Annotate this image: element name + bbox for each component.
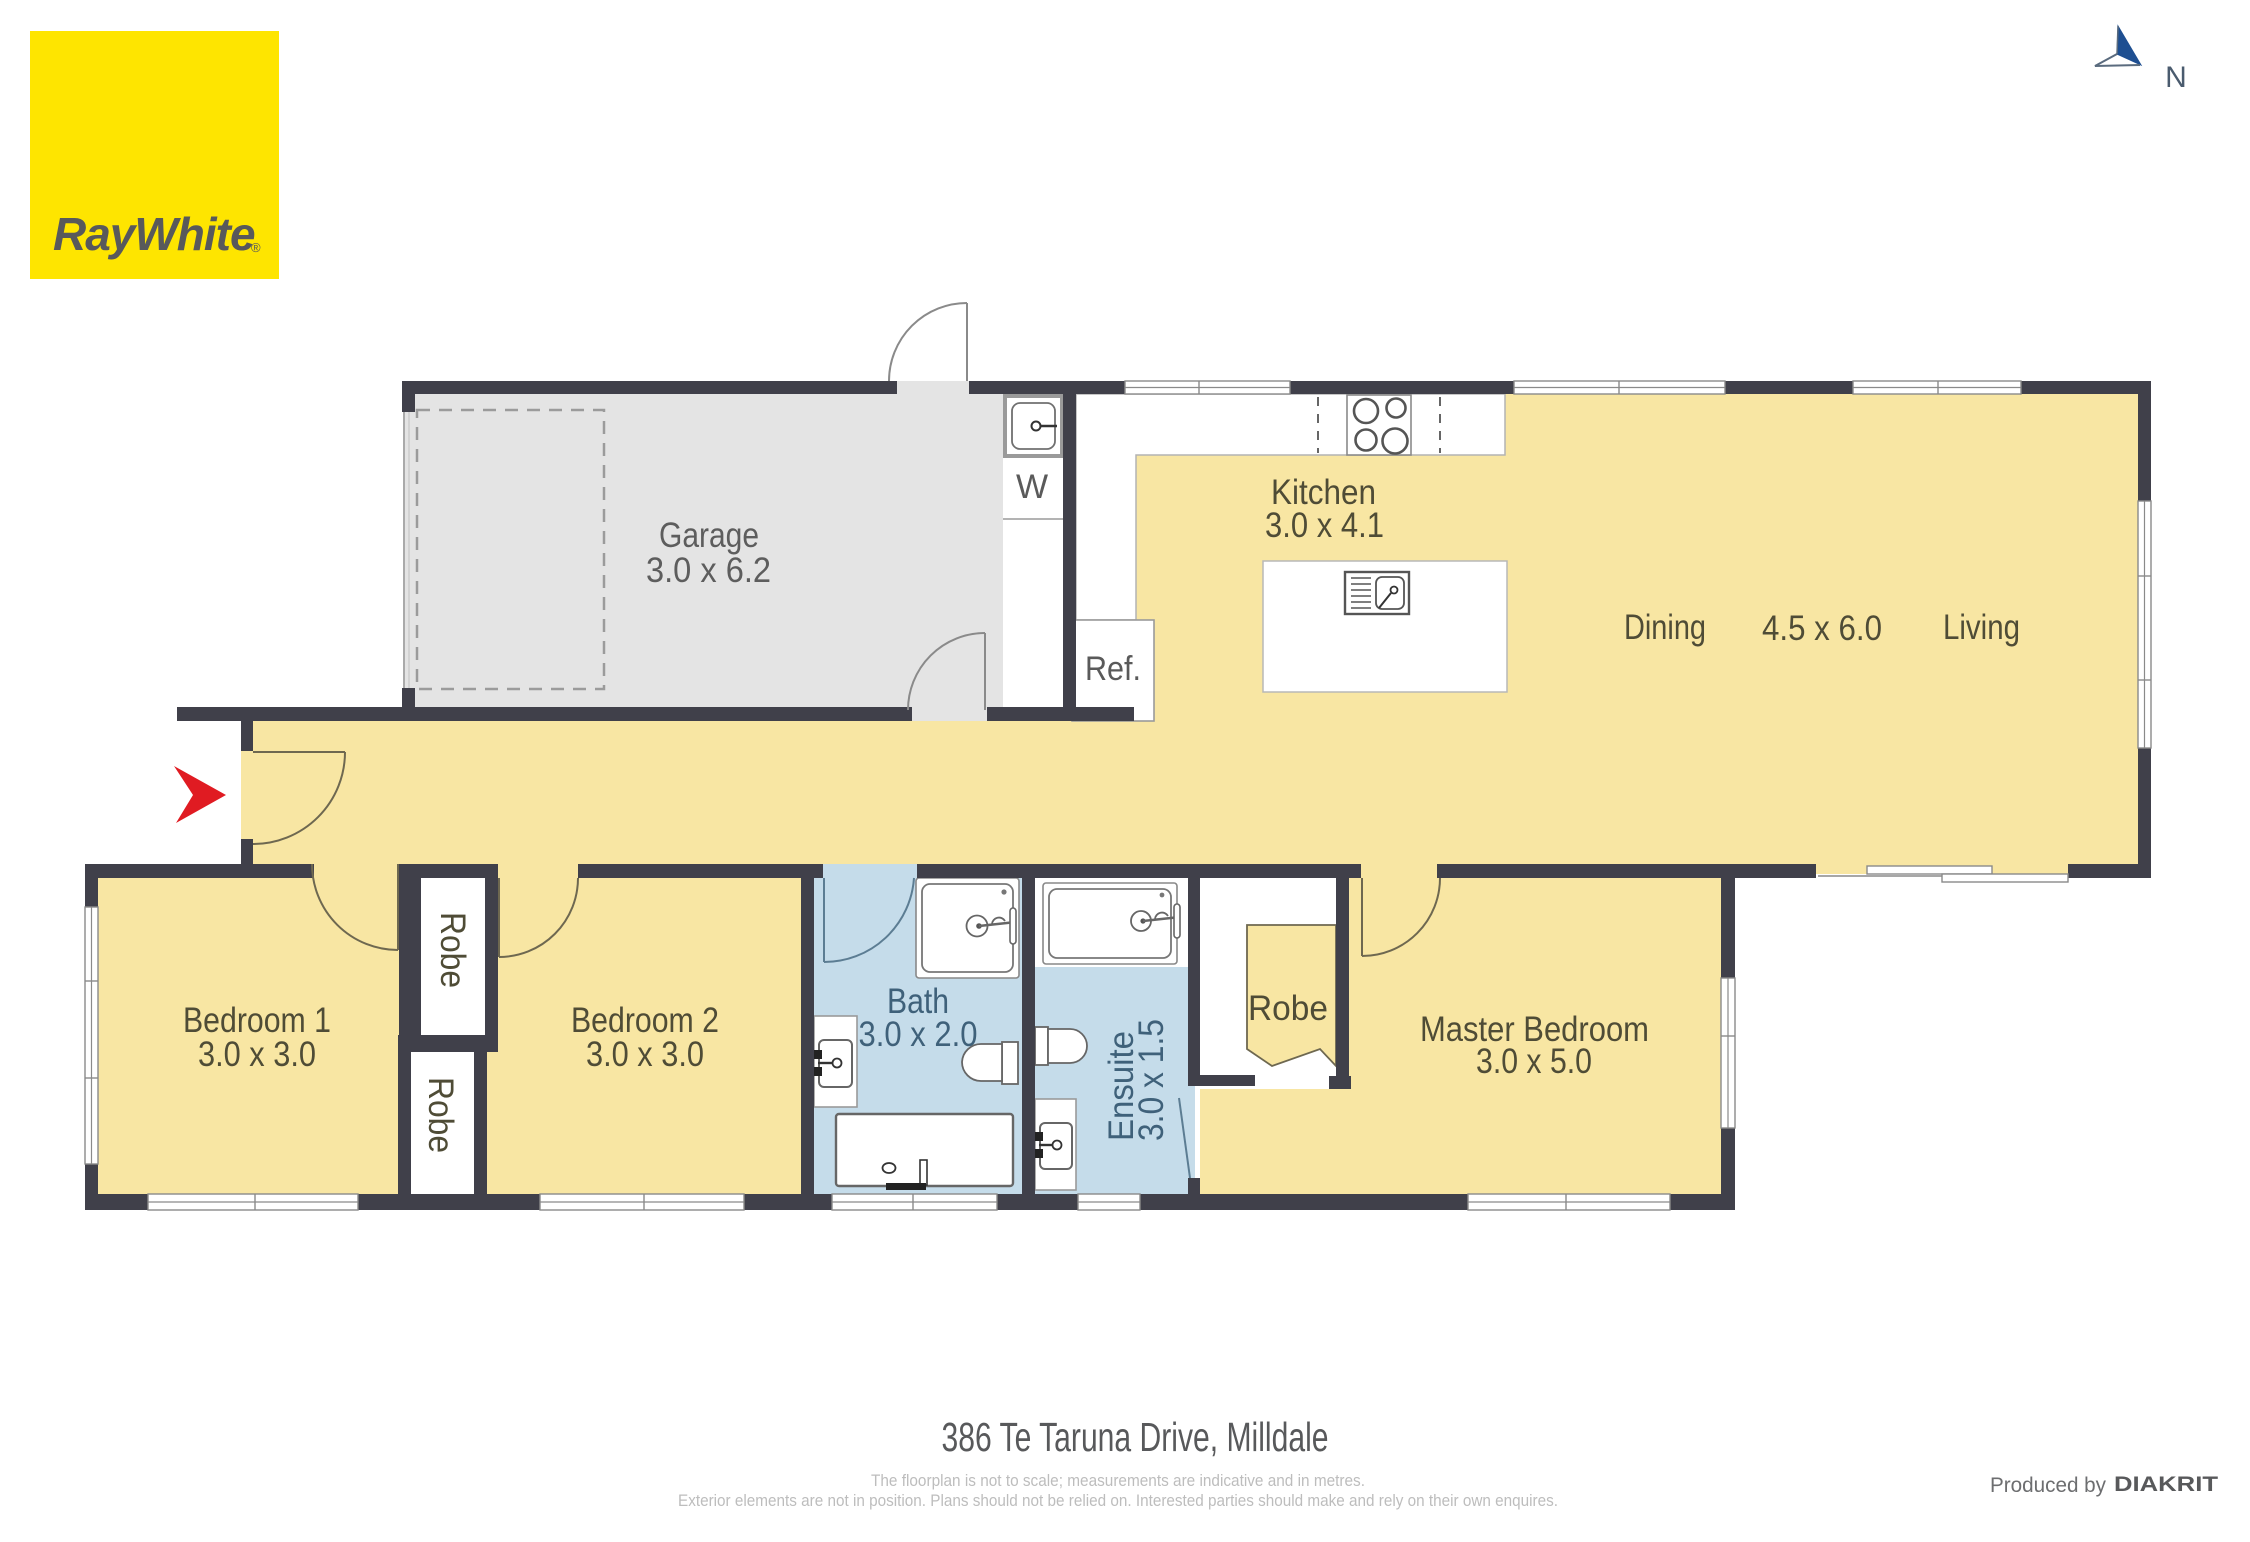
svg-text:Exterior elements are not in p: Exterior elements are not in position. P… (678, 1492, 1558, 1510)
svg-text:3.0 x 1.5: 3.0 x 1.5 (1132, 1019, 1171, 1141)
svg-text:Robe: Robe (433, 912, 472, 988)
svg-text:3.0 x 3.0: 3.0 x 3.0 (198, 1035, 316, 1074)
svg-text:Robe: Robe (421, 1077, 460, 1153)
svg-text:The floorplan is not to scale;: The floorplan is not to scale; measureme… (871, 1472, 1365, 1490)
svg-text:3.0 x 6.2: 3.0 x 6.2 (646, 551, 771, 590)
svg-text:Living: Living (1943, 608, 2020, 647)
svg-text:W: W (1016, 468, 1048, 506)
svg-text:DIAKRIT: DIAKRIT (2114, 1473, 2218, 1496)
svg-text:Robe: Robe (1248, 989, 1328, 1028)
svg-text:Dining: Dining (1624, 608, 1706, 647)
svg-text:3.0 x 2.0: 3.0 x 2.0 (859, 1015, 978, 1054)
svg-text:3.0 x 4.1: 3.0 x 4.1 (1265, 506, 1384, 545)
svg-text:Garage: Garage (659, 516, 759, 555)
svg-text:Produced by: Produced by (1990, 1474, 2106, 1497)
svg-text:4.5 x 6.0: 4.5 x 6.0 (1762, 609, 1882, 648)
svg-text:®: ® (251, 240, 261, 255)
svg-text:RayWhite: RayWhite (53, 208, 255, 260)
svg-text:N: N (2165, 61, 2187, 94)
svg-text:3.0 x 5.0: 3.0 x 5.0 (1476, 1042, 1592, 1081)
svg-text:386 Te Taruna Drive, Milldale: 386 Te Taruna Drive, Milldale (942, 1414, 1329, 1460)
svg-text:3.0 x 3.0: 3.0 x 3.0 (586, 1035, 704, 1074)
svg-text:Ref.: Ref. (1085, 650, 1141, 688)
